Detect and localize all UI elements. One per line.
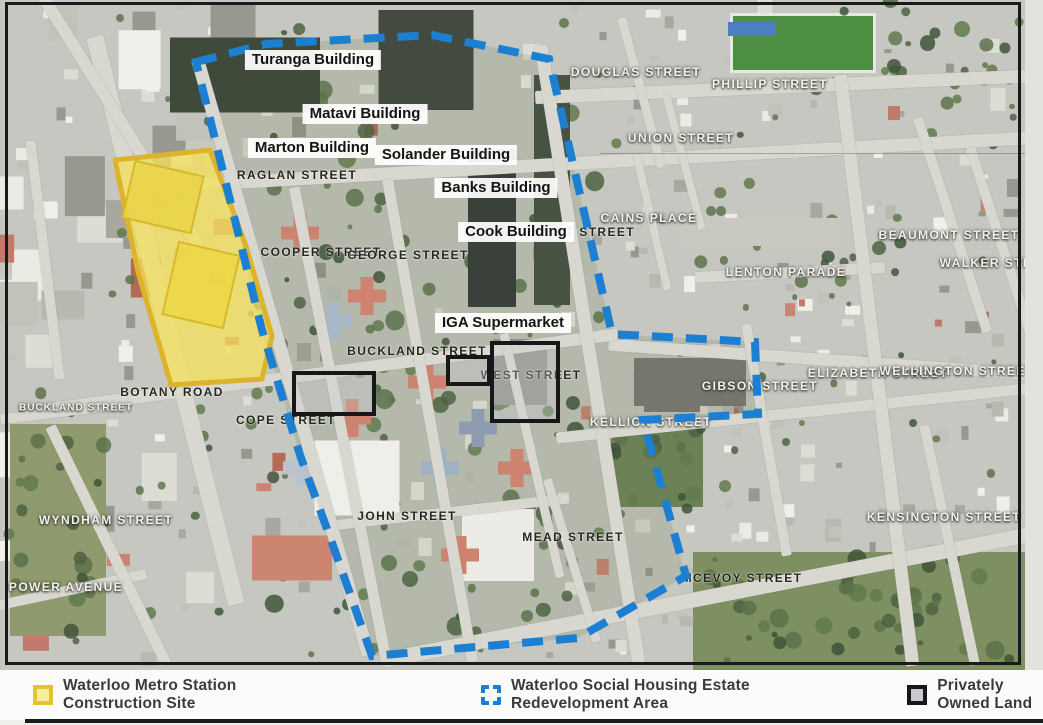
building-block <box>1004 209 1019 217</box>
tree <box>125 275 135 285</box>
tree <box>386 311 405 330</box>
tree <box>536 603 550 617</box>
tree <box>1004 655 1014 665</box>
tree <box>294 297 306 309</box>
street-label-botany-road: BOTANY ROAD <box>120 385 224 399</box>
building-label-matavi-building: Matavi Building <box>303 104 428 124</box>
estate-building <box>379 10 474 110</box>
building-block <box>142 453 176 501</box>
tree <box>3 529 14 540</box>
street-label-beaumont-street: BEAUMONT STREET <box>879 228 1020 242</box>
building-block <box>419 538 432 556</box>
tree <box>191 511 199 519</box>
tree <box>829 293 835 299</box>
running-track <box>728 22 776 36</box>
tree <box>1015 17 1024 26</box>
tree <box>334 607 341 614</box>
building-block <box>992 334 1004 347</box>
building-block <box>940 285 949 292</box>
tree <box>468 584 477 593</box>
tree <box>929 28 940 39</box>
building-block <box>811 203 822 219</box>
building-block <box>65 117 72 123</box>
building-block <box>241 448 253 458</box>
building-block <box>800 444 814 457</box>
building-block <box>653 330 666 341</box>
tree <box>891 268 899 276</box>
tree <box>792 295 798 301</box>
tree <box>215 607 224 616</box>
street-label-george-street: GEORGE STREET <box>347 248 469 262</box>
estate-building <box>644 392 700 412</box>
tree <box>346 188 365 207</box>
building-block <box>141 652 155 666</box>
building-block <box>327 287 341 302</box>
building-block <box>64 156 104 216</box>
tree <box>1009 104 1015 110</box>
tree <box>983 62 989 68</box>
tree <box>267 471 279 483</box>
tree <box>612 139 621 148</box>
building-label-marton-building: Marton Building <box>248 138 376 158</box>
tree <box>881 67 889 75</box>
building-block <box>225 348 231 354</box>
building-block <box>662 615 668 624</box>
building-block <box>785 303 795 317</box>
building-block <box>155 434 165 442</box>
building-block <box>867 206 875 214</box>
estate-building <box>462 509 534 581</box>
building-block <box>680 617 693 626</box>
building-block <box>799 299 805 306</box>
building-block <box>473 401 487 409</box>
tree <box>706 206 716 216</box>
tree <box>898 352 904 358</box>
legend: Waterloo Metro Station Construction Site… <box>0 670 1043 720</box>
tree <box>782 438 790 446</box>
tree <box>758 620 770 632</box>
building-block <box>845 306 861 315</box>
building-block <box>297 343 311 361</box>
building-block <box>749 488 760 501</box>
building-block <box>829 527 842 538</box>
building-block <box>252 536 332 581</box>
legend-item-metro-site: Waterloo Metro Station Construction Site <box>33 677 269 713</box>
building-block <box>869 542 876 552</box>
tree <box>308 651 314 657</box>
building-block <box>1007 179 1019 197</box>
tree <box>35 388 47 400</box>
tree <box>987 469 995 477</box>
building-block <box>961 426 968 434</box>
building-block <box>627 115 634 126</box>
tree <box>13 552 28 567</box>
building-block <box>521 75 531 89</box>
tree <box>265 595 284 614</box>
tree <box>889 32 902 45</box>
building-block <box>876 200 882 207</box>
building-block <box>842 319 854 327</box>
tree <box>771 631 778 638</box>
tree <box>731 446 739 454</box>
building-block <box>3 353 15 361</box>
tree <box>388 397 395 404</box>
tree <box>561 590 572 601</box>
tree <box>593 312 604 323</box>
tree <box>74 552 87 565</box>
building-block <box>126 315 136 329</box>
building-block <box>699 405 707 414</box>
building-label-turanga-building: Turanga Building <box>245 50 381 70</box>
tree <box>673 433 678 438</box>
building-block <box>64 70 78 79</box>
street-label-wellington-street: WELLINGTON STREET <box>880 364 1035 378</box>
building-block <box>998 110 1010 121</box>
building-block <box>225 337 239 345</box>
building-block <box>822 95 832 108</box>
building-block <box>119 345 133 361</box>
tree <box>559 18 569 28</box>
building-block <box>186 572 214 604</box>
tree <box>681 503 692 514</box>
legend-label: Waterloo Metro Station Construction Site <box>63 677 269 713</box>
tree <box>441 391 455 405</box>
building-block <box>646 568 653 576</box>
building-block <box>888 107 900 121</box>
building-block <box>650 274 661 288</box>
building-block <box>704 443 711 447</box>
building-block <box>243 397 251 406</box>
building-block <box>265 518 280 536</box>
tree <box>770 609 789 628</box>
tree <box>31 434 46 449</box>
building-block <box>173 247 194 258</box>
tree <box>23 475 39 491</box>
building-block <box>884 49 891 53</box>
tree <box>719 480 731 492</box>
tree <box>348 225 353 230</box>
street-label-mcevoy-street: MCEVOY STREET <box>682 571 803 585</box>
building-label-solander-building: Solander Building <box>375 145 517 165</box>
tree <box>715 187 726 198</box>
tree <box>566 396 580 410</box>
tree <box>883 0 897 8</box>
street-label-buckland-street: BUCKLAND STREET <box>19 403 133 414</box>
tree <box>986 641 1005 660</box>
tree <box>282 30 288 36</box>
tree <box>109 291 116 298</box>
street-label-raglan-street: RAGLAN STREET <box>237 168 357 182</box>
building-block <box>546 652 554 658</box>
tree <box>741 601 756 616</box>
scan-artifact-line <box>600 153 1028 154</box>
tree <box>402 571 418 587</box>
building-block <box>626 242 634 251</box>
building-block <box>680 113 691 126</box>
building-block <box>951 39 963 48</box>
tree <box>96 437 112 453</box>
building-block <box>171 152 192 167</box>
tree <box>530 588 539 597</box>
tree <box>720 256 728 264</box>
building-block <box>210 270 225 284</box>
building-block <box>516 304 525 310</box>
tree <box>294 23 306 35</box>
building-block <box>686 525 695 532</box>
building-block <box>817 332 830 344</box>
building-block <box>846 381 857 396</box>
building-block <box>411 482 425 500</box>
building-block <box>176 4 185 10</box>
tree <box>423 282 436 295</box>
private-land-parcel <box>292 371 376 416</box>
tree <box>643 444 658 459</box>
building-block <box>118 30 161 90</box>
building-block <box>466 471 475 481</box>
private-land-parcel <box>446 355 491 386</box>
building-block <box>678 30 686 40</box>
legend-label: Waterloo Social Housing Estate Redevelop… <box>511 677 779 713</box>
building-block <box>817 291 828 303</box>
street-label-cains-place: CAINS PLACE <box>601 211 698 225</box>
tree <box>413 560 425 572</box>
tree <box>685 486 701 502</box>
building-block <box>635 519 651 532</box>
building-block <box>124 366 133 380</box>
building-block <box>684 276 696 292</box>
tree <box>374 271 386 283</box>
building-block <box>731 533 742 542</box>
building-block <box>615 640 626 652</box>
building-block <box>397 537 410 545</box>
street-label-mead-street: MEAD STREET <box>522 530 623 544</box>
tree <box>906 41 912 47</box>
building-block <box>727 505 738 517</box>
building-block <box>57 107 66 120</box>
tree <box>252 388 263 399</box>
tree <box>64 624 79 639</box>
tree <box>381 555 397 571</box>
page-margin <box>1025 0 1043 670</box>
building-block <box>836 463 842 467</box>
tree <box>712 557 718 563</box>
building-block <box>299 519 306 526</box>
tree <box>724 657 731 664</box>
tree <box>840 7 849 16</box>
tree <box>284 277 289 282</box>
building-block <box>597 559 609 575</box>
building-block <box>299 581 309 592</box>
tree <box>15 478 24 487</box>
tree <box>1000 42 1011 53</box>
legend-item-private-land: Privately Owned Land <box>907 677 1043 713</box>
building-block <box>757 531 768 542</box>
building-label-cook-building: Cook Building <box>458 222 574 242</box>
tree <box>909 419 917 427</box>
page-bottom-rule <box>25 719 1043 723</box>
tree <box>901 7 911 17</box>
street-label-kensington-street: KENSINGTON STREET <box>867 510 1021 524</box>
building-block <box>991 402 1004 417</box>
street-label-power-avenue: POWER AVENUE <box>9 580 123 594</box>
building-block <box>179 529 186 538</box>
building-block <box>935 320 941 327</box>
street-label-john-street: JOHN STREET <box>357 509 456 523</box>
building-block <box>207 206 214 213</box>
building-label-banks-building: Banks Building <box>434 178 557 198</box>
building-block <box>991 88 1006 110</box>
building-block <box>0 177 24 210</box>
tree <box>848 627 860 639</box>
street-label-union-street: UNION STREET <box>628 131 734 145</box>
tree <box>18 456 25 463</box>
building-block <box>571 6 579 12</box>
tree <box>521 610 533 622</box>
building-block <box>801 464 814 481</box>
tree <box>248 311 254 317</box>
tree <box>366 325 375 334</box>
building-block <box>180 605 189 612</box>
tree <box>265 385 273 393</box>
tree <box>157 481 166 490</box>
street-label-gibson-street: GIBSON STREET <box>702 379 818 393</box>
legend-item-redevelopment-area: Waterloo Social Housing Estate Redevelop… <box>481 677 779 713</box>
tree <box>716 206 726 216</box>
building-block <box>857 156 865 168</box>
tree <box>870 589 883 602</box>
building-block <box>107 419 119 426</box>
building-block <box>979 211 986 216</box>
building-block <box>360 85 375 94</box>
tree <box>954 21 970 37</box>
tree <box>830 380 837 387</box>
tree <box>1010 114 1017 121</box>
legend-label: Privately Owned Land <box>937 677 1043 713</box>
building-block <box>121 340 128 348</box>
tree <box>798 420 804 426</box>
building-block <box>600 32 607 40</box>
tree <box>872 241 886 255</box>
building-block <box>810 100 818 108</box>
cross-building <box>361 277 374 315</box>
private-land-parcel <box>490 341 560 423</box>
tree <box>737 131 743 137</box>
street-label-lenton-parade: LENTON PARADE <box>726 265 846 279</box>
estate-building <box>170 38 320 113</box>
building-block <box>665 17 673 28</box>
building-block <box>211 4 256 39</box>
street-label-kellick-street: KELLICK STREET <box>590 415 712 429</box>
scanned-map-page: RAGLAN STREETCOOPER STREETGEORGE STREETP… <box>0 0 1043 725</box>
street-label-phillip-street: PHILLIP STREET <box>712 77 828 91</box>
blue-dashed-square-icon <box>481 685 501 705</box>
building-block <box>89 249 99 262</box>
tree <box>744 178 754 188</box>
tree <box>742 304 748 310</box>
building-label-iga-supermarket: IGA Supermarket <box>435 313 571 333</box>
building-block <box>646 9 661 18</box>
building-block <box>256 483 271 491</box>
building-block <box>732 428 741 436</box>
tree <box>585 172 605 192</box>
tree <box>528 333 533 338</box>
building-block <box>978 488 985 496</box>
building-block <box>649 55 660 62</box>
building-block <box>786 284 795 291</box>
tree <box>116 14 124 22</box>
tree <box>952 95 961 104</box>
building-block <box>0 282 38 326</box>
tree <box>694 255 707 268</box>
tree <box>773 115 778 120</box>
black-square-icon <box>907 685 927 705</box>
building-block <box>0 234 15 263</box>
tree <box>381 524 388 531</box>
tree <box>893 214 901 222</box>
tree <box>374 205 382 213</box>
street-label-douglas-street: DOUGLAS STREET <box>571 65 701 79</box>
yellow-square-icon <box>33 685 53 705</box>
tree <box>72 638 79 645</box>
building-block <box>1012 123 1021 131</box>
aerial-map: RAGLAN STREETCOOPER STREETGEORGE STREETP… <box>0 0 1043 670</box>
cross-building <box>472 409 485 447</box>
building-block <box>81 272 92 288</box>
street-label-wyndham-street: WYNDHAM STREET <box>39 513 173 527</box>
cross-building <box>511 449 524 487</box>
tree <box>932 598 940 606</box>
road-beaumont-street <box>912 116 991 333</box>
building-block <box>790 336 801 341</box>
